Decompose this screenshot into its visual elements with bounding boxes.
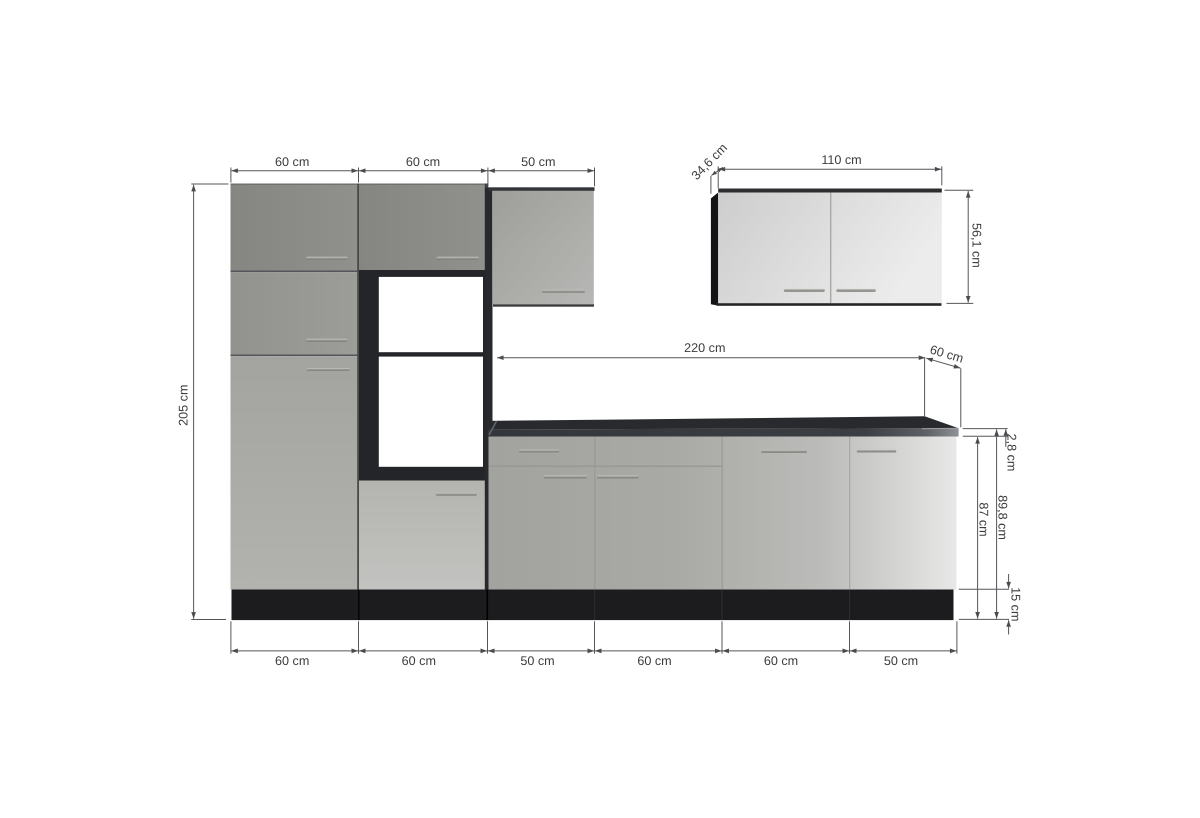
svg-text:60 cm: 60 cm (275, 654, 309, 668)
svg-text:220 cm: 220 cm (684, 341, 725, 355)
svg-text:50 cm: 50 cm (521, 155, 555, 169)
svg-text:2,8 cm: 2,8 cm (1005, 434, 1019, 472)
svg-text:60 cm: 60 cm (406, 155, 440, 169)
svg-text:60 cm: 60 cm (637, 654, 671, 668)
svg-text:60 cm: 60 cm (275, 155, 309, 169)
svg-text:56,1 cm: 56,1 cm (969, 223, 983, 268)
svg-text:110 cm: 110 cm (821, 153, 861, 167)
svg-text:15 cm: 15 cm (1008, 587, 1022, 621)
svg-text:89,8 cm: 89,8 cm (995, 495, 1009, 540)
svg-text:205 cm: 205 cm (176, 385, 190, 426)
svg-text:50 cm: 50 cm (884, 654, 918, 668)
svg-text:87 cm: 87 cm (976, 502, 990, 536)
svg-text:60 cm: 60 cm (402, 654, 436, 668)
svg-text:50 cm: 50 cm (520, 654, 554, 668)
svg-text:60 cm: 60 cm (764, 654, 798, 668)
